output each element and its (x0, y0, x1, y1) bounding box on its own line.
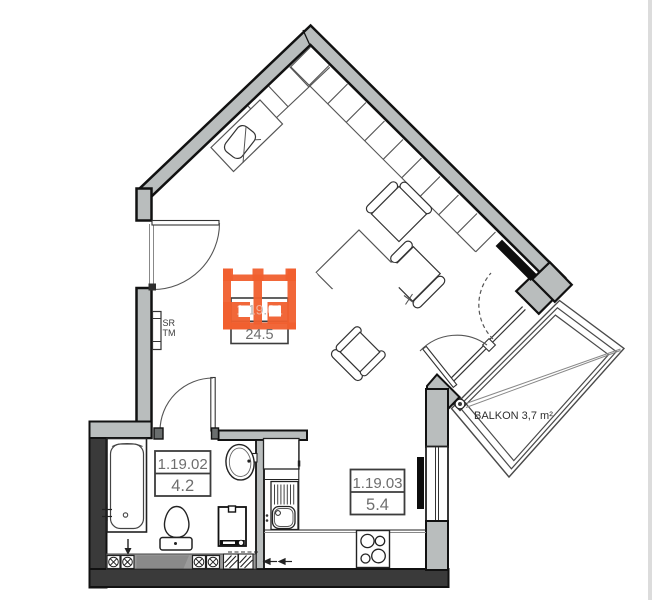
svg-text:1.19.02: 1.19.02 (158, 456, 208, 473)
svg-text:BALKON 3,7 m²: BALKON 3,7 m² (474, 410, 553, 422)
svg-text:24.5: 24.5 (245, 327, 273, 343)
svg-text:SR: SR (163, 318, 176, 328)
svg-text:5.4: 5.4 (366, 496, 389, 514)
svg-text:1.19.03: 1.19.03 (352, 475, 402, 492)
svg-text:4.2: 4.2 (171, 477, 194, 495)
svg-text:1.19.01: 1.19.01 (236, 302, 283, 318)
svg-text:TM: TM (163, 328, 176, 338)
